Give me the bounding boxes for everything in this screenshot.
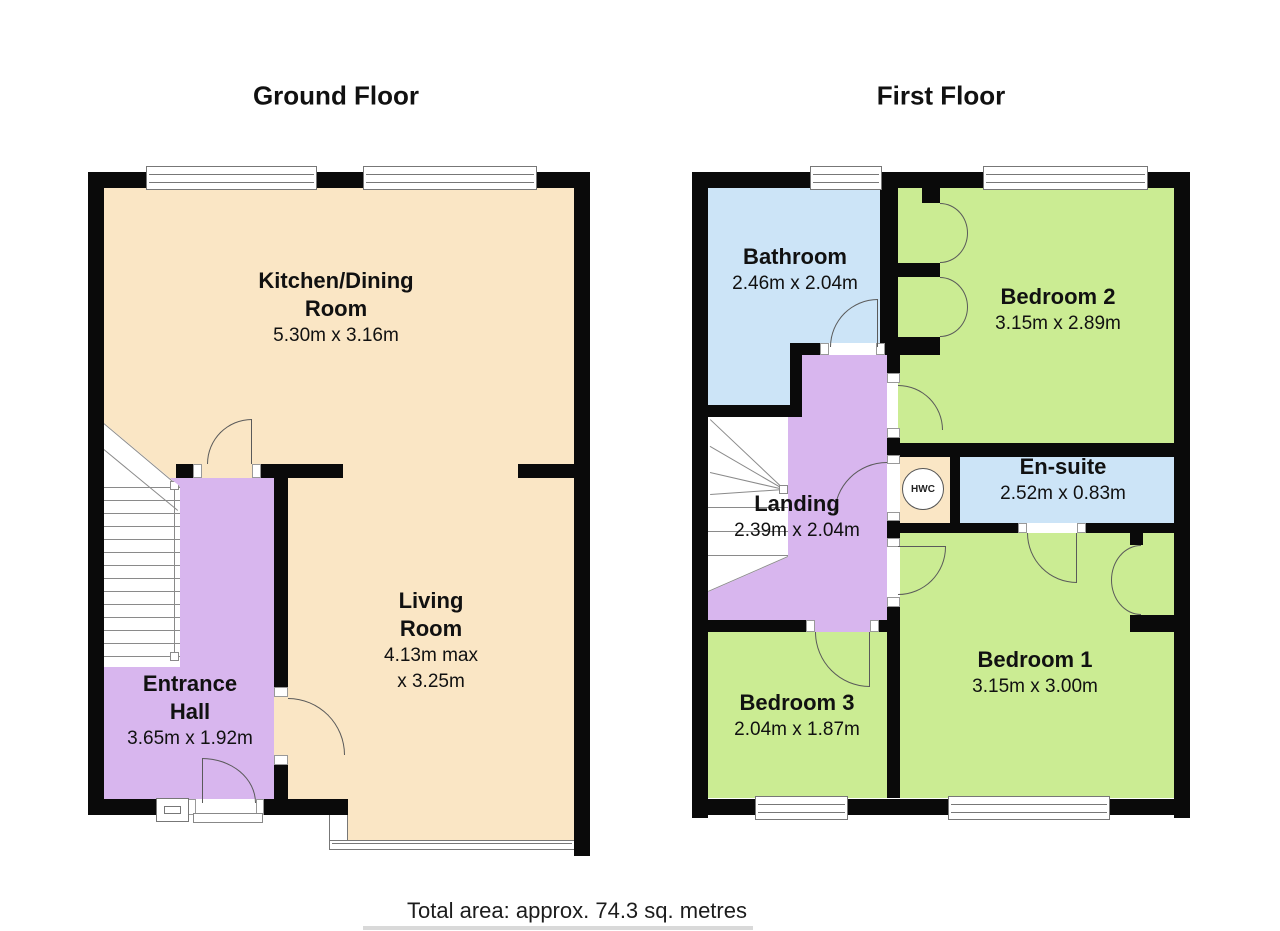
door-leaf — [1076, 533, 1077, 583]
door-jamb — [887, 512, 900, 521]
wall — [257, 799, 348, 815]
wall — [574, 172, 590, 856]
landing-label: Landing 2.39m x 2.04m — [734, 490, 860, 544]
door-jamb — [274, 687, 288, 697]
window — [755, 796, 848, 820]
wall — [252, 464, 343, 478]
wall — [274, 478, 288, 697]
door-leaf — [251, 419, 252, 464]
hwc-cylinder-symbol: HWC — [902, 468, 944, 510]
hwc-label: HWC — [911, 484, 935, 495]
door-leaf — [898, 546, 946, 547]
door-jamb — [820, 343, 829, 355]
door-jamb — [274, 755, 288, 765]
kitchen-label: Kitchen/Dining Room 5.30m x 3.16m — [258, 267, 413, 349]
ground-floor-title: Ground Floor — [253, 81, 419, 112]
cropped-text-remnant — [363, 926, 753, 930]
door-leaf — [877, 299, 878, 347]
wall — [950, 443, 960, 533]
front-door-step — [193, 813, 263, 823]
bedroom1-label: Bedroom 1 3.15m x 3.00m — [972, 646, 1098, 700]
bedroom2-label: Bedroom 2 3.15m x 2.89m — [995, 283, 1121, 337]
room-bathroom-lobe — [708, 343, 790, 405]
door-jamb — [1077, 523, 1086, 533]
door-jamb — [193, 464, 202, 478]
door-jamb — [806, 620, 815, 632]
door-jamb — [887, 373, 900, 383]
wall — [880, 188, 898, 355]
bedroom3-label: Bedroom 3 2.04m x 1.87m — [734, 689, 860, 743]
living-bay-floor — [347, 799, 574, 841]
door-leaf — [202, 758, 203, 803]
total-area-caption: Total area: approx. 74.3 sq. metres — [407, 898, 747, 924]
wardrobe-stub — [898, 337, 940, 355]
wall — [88, 172, 104, 815]
entrance-hall-label: Entrance Hall 3.65m x 1.92m — [127, 670, 253, 752]
window — [810, 166, 882, 190]
wall — [518, 464, 574, 478]
floor-plan-canvas: HWC Ground Floor First Floor Kitchen/Din… — [0, 0, 1280, 931]
wardrobe-stub — [922, 188, 940, 203]
door-leaf — [869, 632, 870, 687]
wardrobe-stub — [1130, 533, 1143, 545]
wall — [1174, 172, 1190, 818]
wall — [708, 620, 815, 632]
wardrobe-stub — [1130, 615, 1174, 632]
wall — [887, 632, 900, 798]
wardrobe-stub — [898, 263, 940, 277]
door-jamb — [887, 455, 900, 464]
door-jamb — [870, 620, 879, 632]
door-jamb — [887, 597, 900, 607]
door-jamb — [252, 464, 261, 478]
window — [156, 798, 189, 822]
living-label: Living Room 4.13m max x 3.25m — [384, 587, 478, 695]
window — [983, 166, 1148, 190]
ensuite-label: En-suite 2.52m x 0.83m — [1000, 453, 1126, 507]
door-jamb — [1018, 523, 1027, 533]
first-floor-title: First Floor — [877, 81, 1006, 112]
wall — [708, 405, 802, 417]
wall — [898, 523, 1027, 533]
bay-window-front — [329, 840, 575, 850]
bathroom-label: Bathroom 2.46m x 2.04m — [732, 243, 858, 297]
wall — [1077, 523, 1174, 533]
window — [146, 166, 317, 190]
wall — [692, 172, 708, 818]
window — [948, 796, 1110, 820]
window — [363, 166, 537, 190]
